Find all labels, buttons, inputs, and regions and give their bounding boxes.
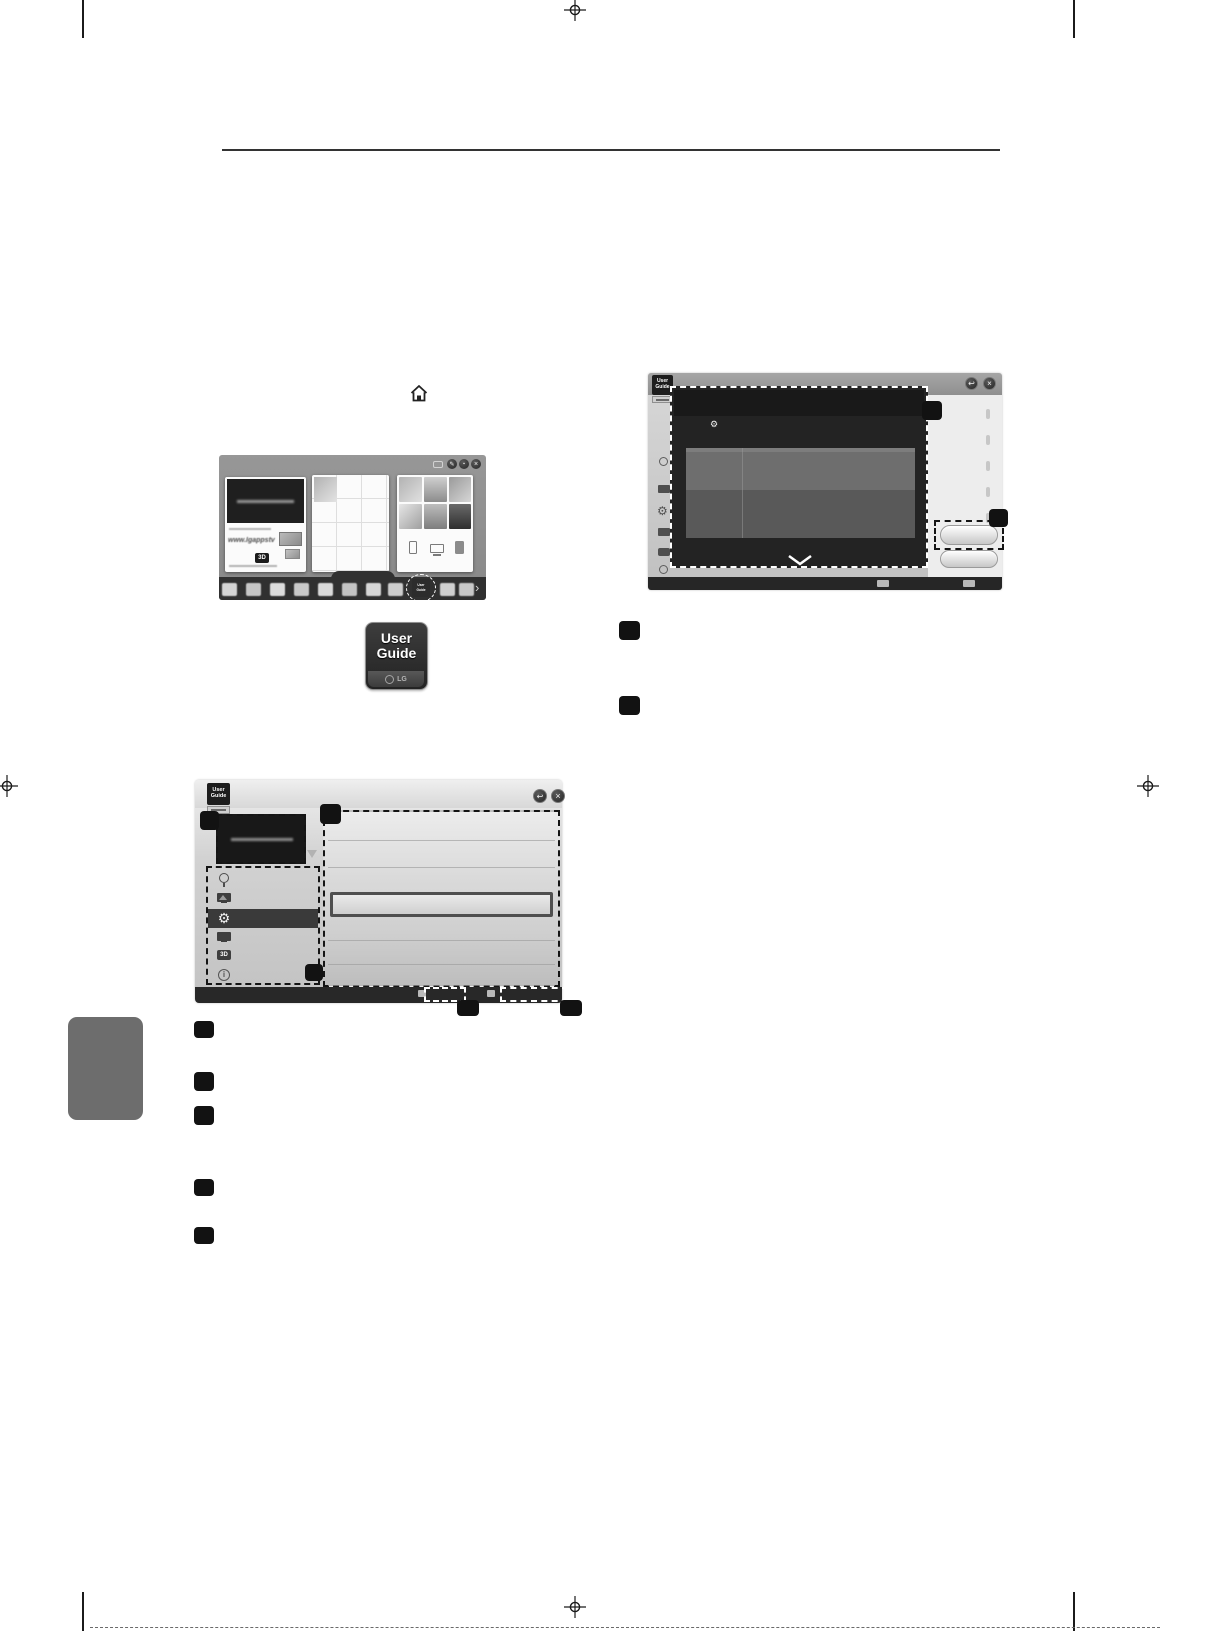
account-icon	[433, 461, 443, 468]
back-button-icon: ↩	[533, 789, 547, 803]
bullet-glyph: ⚙	[710, 419, 718, 429]
right-list-marker-1	[619, 621, 640, 640]
overlay-title-band	[674, 390, 924, 416]
gear-glyph: ⚙	[657, 504, 668, 518]
video-preview-box	[216, 814, 306, 864]
chat-icon: ▪	[459, 459, 469, 469]
window-header	[195, 780, 562, 808]
user-guide-app-icon: User Guide LG	[365, 622, 428, 690]
back-glyph: ↩	[537, 792, 544, 801]
promo-image-small	[285, 549, 300, 559]
app-icon-line2: Guide	[366, 646, 427, 661]
expand-chevron-icon	[787, 554, 813, 566]
callout-marker-1	[200, 811, 219, 830]
launcher-app-icon	[294, 583, 309, 596]
tv-picture-icon	[214, 887, 234, 907]
close-icon: ×	[471, 459, 481, 469]
close-button-icon: ×	[983, 377, 996, 390]
display-icon	[658, 528, 670, 536]
promo-url: www.lgappstv	[228, 537, 275, 544]
launcher-app-icon	[270, 583, 285, 596]
edit-pencil-icon: ✎	[447, 459, 457, 469]
remote-exit-button-hint	[963, 580, 975, 587]
column-divider	[742, 448, 743, 538]
gear-glyph: ⚙	[218, 910, 231, 927]
launcher-app-icon	[459, 583, 474, 596]
app-icon-label: User Guide	[366, 631, 427, 661]
usb-icon	[455, 541, 464, 554]
launcher-app-icon	[222, 583, 237, 596]
photo-thumbnail	[399, 504, 422, 529]
selected-content-row	[330, 892, 553, 917]
search-icon	[214, 868, 234, 888]
setting-row-band-1	[686, 448, 915, 490]
callout-marker-r2	[989, 509, 1008, 527]
launcher-app-icon	[440, 583, 455, 596]
option-button-1	[940, 525, 998, 545]
bottom-trim-line	[90, 1627, 1160, 1628]
launcher-more-icon: ›	[475, 581, 479, 594]
tv-picture-icon	[658, 485, 670, 493]
crop-mark-bottom-left	[82, 1592, 84, 1631]
scrollbar-segment	[986, 487, 990, 497]
setting-bullet-icon: ⚙	[710, 420, 718, 429]
launcher-app-icon	[246, 583, 261, 596]
remote-exit-button-hint	[487, 990, 495, 997]
banner-text-blur	[237, 500, 294, 503]
tv-device-icon	[430, 544, 444, 553]
tv-device-stand	[433, 554, 441, 556]
settings-overlay-screenshot: User Guide ↩ × ⚙ ⚙	[648, 373, 1002, 590]
lg-logo-text: LG	[397, 676, 407, 683]
registration-mark-bottom	[564, 1596, 586, 1618]
crop-mark-top-left	[82, 0, 84, 38]
callout-marker-2	[320, 804, 341, 824]
registration-mark-left	[0, 775, 18, 797]
scrollbar-segment	[986, 409, 990, 419]
photo-thumbnail	[449, 477, 471, 502]
promo-smear	[229, 565, 277, 567]
row-separator	[328, 867, 555, 868]
callout-marker-3	[305, 964, 323, 981]
home-icon	[409, 384, 429, 403]
launcher-app-icon	[388, 583, 403, 596]
callout-marker-4	[457, 1000, 479, 1016]
chat-glyph: ▪	[463, 461, 465, 467]
list-marker-4	[194, 1179, 214, 1196]
scrollbar-segment	[986, 461, 990, 471]
grid-cell-highlight	[399, 477, 422, 502]
manual-page: ✎ ▪ × www.lgappstv 3D	[0, 0, 1206, 1631]
row-separator	[328, 840, 555, 841]
badge-line2: Guide	[207, 793, 230, 799]
media-card	[397, 475, 473, 572]
list-marker-2	[194, 1072, 214, 1091]
launcher-app-icon	[366, 583, 381, 596]
search-icon	[659, 457, 668, 466]
list-marker-1	[194, 1021, 214, 1038]
content-list-box	[323, 810, 560, 987]
photo-thumbnail	[449, 504, 471, 529]
scrollbar-segment	[986, 435, 990, 445]
row-separator	[328, 964, 555, 965]
display-icon	[214, 926, 234, 946]
grid-card	[312, 475, 389, 572]
list-marker-3	[194, 1106, 214, 1125]
close-glyph: ×	[555, 791, 560, 801]
edit-glyph: ✎	[449, 461, 454, 468]
home-screen-screenshot: ✎ ▪ × www.lgappstv 3D	[219, 455, 486, 600]
photo-thumbnail	[424, 504, 447, 529]
collapse-arrow-icon	[307, 850, 317, 858]
app-icon-line1: User	[366, 631, 427, 646]
promo-image	[279, 532, 302, 546]
registration-mark-top	[564, 0, 586, 21]
app-icon-brand-strip: LG	[368, 671, 424, 687]
right-list-marker-2	[619, 696, 640, 715]
info-glyph: i	[218, 969, 230, 981]
3d-label: 3D	[217, 950, 231, 960]
3d-icon: 3D	[214, 945, 234, 965]
grid-cell-highlight	[314, 477, 337, 502]
lg-logo-icon	[385, 675, 394, 684]
setting-row-band-2	[686, 490, 915, 538]
settings-panel-overlay: ⚙	[670, 386, 928, 568]
user-guide-window-screenshot: User Guide ↩ ×	[195, 780, 562, 1003]
row-separator	[328, 985, 555, 986]
video-caption-blur	[231, 838, 293, 841]
crop-mark-bottom-right	[1073, 1592, 1075, 1631]
close-button-icon: ×	[551, 789, 565, 803]
remote-ok-button-hint	[877, 580, 889, 587]
launcher-ug-line1: User	[414, 583, 428, 587]
info-icon	[659, 565, 668, 574]
crop-mark-top-right	[1073, 0, 1075, 38]
settings-gear-icon: ⚙	[657, 505, 668, 517]
close-glyph: ×	[474, 461, 478, 468]
photo-thumbnail	[424, 477, 447, 502]
registration-mark-right	[1137, 775, 1159, 797]
option-panel	[928, 395, 1002, 577]
back-glyph: ↩	[968, 379, 975, 388]
info-icon: i	[214, 965, 234, 985]
list-marker-5	[194, 1227, 214, 1244]
sidebar-menu-box: ⚙ 3D i	[206, 866, 320, 985]
premium-card: www.lgappstv 3D	[225, 477, 306, 572]
close-glyph: ×	[987, 379, 992, 388]
threed-chip: 3D	[255, 553, 269, 563]
section-rule	[222, 149, 1000, 151]
bottom-hint-box-2	[500, 987, 568, 1002]
launcher-app-icon	[318, 583, 333, 596]
row-separator	[328, 940, 555, 941]
launcher-app-icon	[342, 583, 357, 596]
chapter-side-tab	[68, 1017, 143, 1120]
user-guide-badge: User Guide	[207, 783, 230, 805]
video-banner	[227, 479, 304, 523]
callout-marker-r1	[922, 401, 942, 420]
back-button-icon: ↩	[965, 377, 978, 390]
option-button-2	[940, 550, 998, 568]
callout-marker-5	[560, 1000, 582, 1016]
smartphone-icon	[409, 541, 417, 554]
settings-gear-icon: ⚙	[214, 908, 234, 928]
window-bottom-bar	[648, 577, 1002, 590]
promo-smear	[229, 528, 271, 530]
launcher-ug-line2: Guide	[414, 588, 428, 592]
launcher-user-guide-icon: User Guide	[412, 579, 430, 597]
3d-icon	[658, 548, 670, 556]
